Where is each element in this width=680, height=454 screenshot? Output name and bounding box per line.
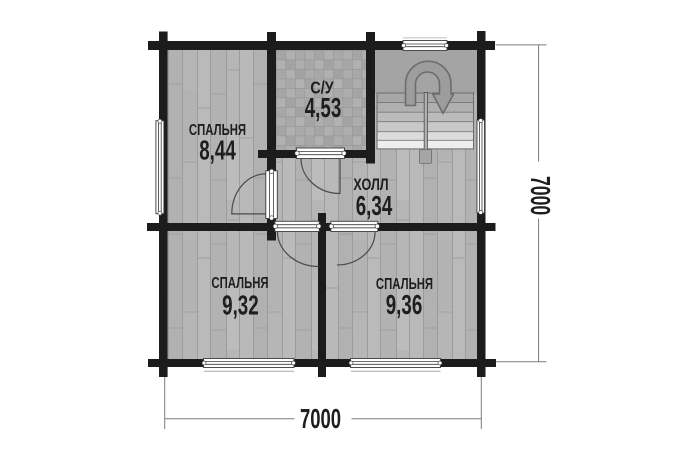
svg-text:8,44: 8,44 [199, 135, 236, 167]
svg-text:9,36: 9,36 [386, 290, 423, 322]
svg-text:7000: 7000 [300, 404, 341, 435]
svg-text:9,32: 9,32 [222, 290, 259, 322]
svg-text:4,53: 4,53 [305, 93, 342, 125]
svg-text:7000: 7000 [525, 176, 556, 215]
svg-text:СПАЛЬНЯ: СПАЛЬНЯ [211, 273, 268, 291]
svg-text:6,34: 6,34 [356, 190, 393, 222]
